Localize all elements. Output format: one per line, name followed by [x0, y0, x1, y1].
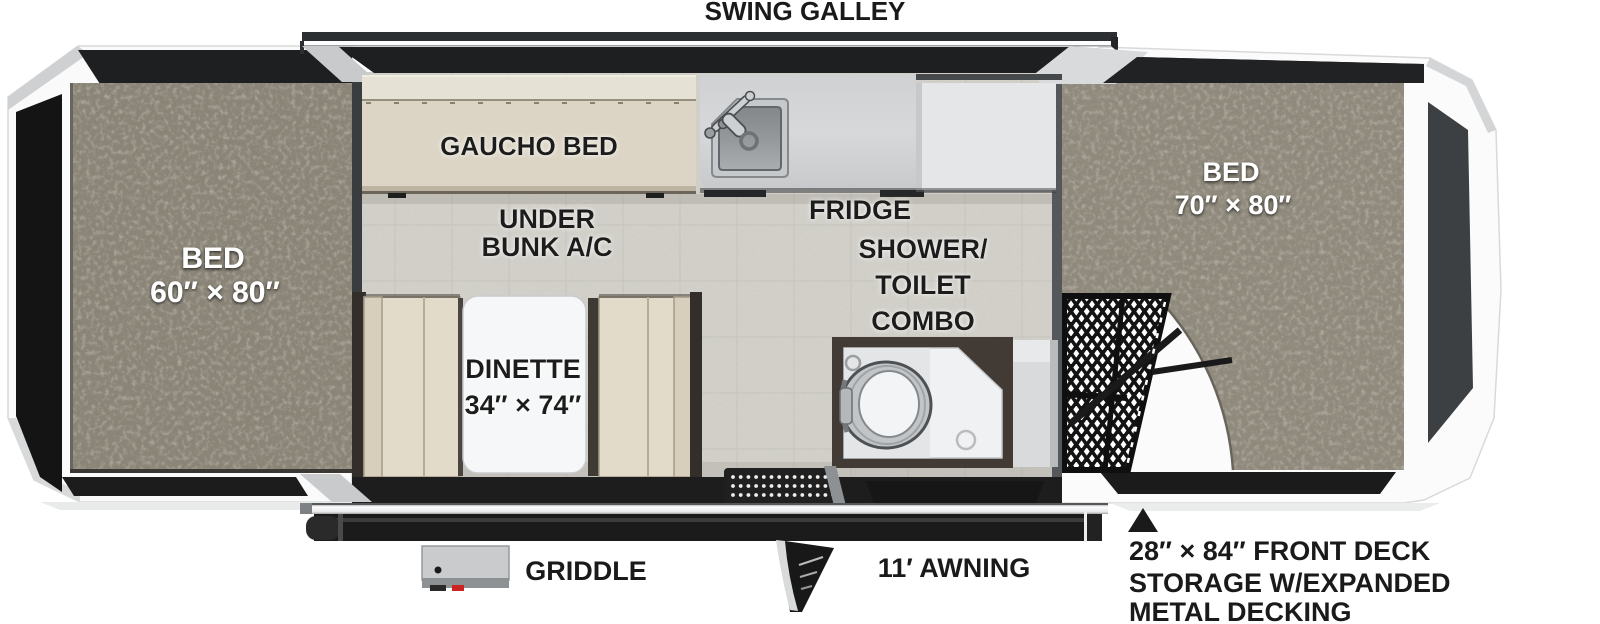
svg-text:11′ AWNING: 11′ AWNING [878, 553, 1031, 583]
svg-text:70″ × 80″: 70″ × 80″ [1175, 190, 1292, 220]
svg-text:BED: BED [181, 242, 244, 275]
svg-text:60″ × 80″: 60″ × 80″ [150, 276, 280, 309]
svg-text:STORAGE W/EXPANDED: STORAGE W/EXPANDED [1129, 568, 1451, 598]
svg-text:BUNK A/C: BUNK A/C [482, 232, 613, 262]
svg-text:BED: BED [1202, 157, 1259, 187]
svg-text:UNDER: UNDER [499, 204, 595, 234]
svg-text:DINETTE: DINETTE [465, 354, 581, 384]
svg-text:28″ × 84″ FRONT DECK: 28″ × 84″ FRONT DECK [1129, 536, 1431, 566]
svg-text:METAL DECKING: METAL DECKING [1129, 597, 1352, 624]
svg-text:SWING GALLEY: SWING GALLEY [705, 0, 906, 26]
svg-text:GRIDDLE: GRIDDLE [525, 556, 647, 586]
svg-text:GAUCHO BED: GAUCHO BED [440, 131, 618, 161]
svg-text:FRIDGE: FRIDGE [809, 195, 911, 225]
svg-text:COMBO: COMBO [871, 306, 975, 336]
svg-text:34″ × 74″: 34″ × 74″ [465, 390, 582, 420]
svg-text:TOILET: TOILET [875, 270, 971, 300]
svg-text:SHOWER/: SHOWER/ [858, 234, 988, 264]
